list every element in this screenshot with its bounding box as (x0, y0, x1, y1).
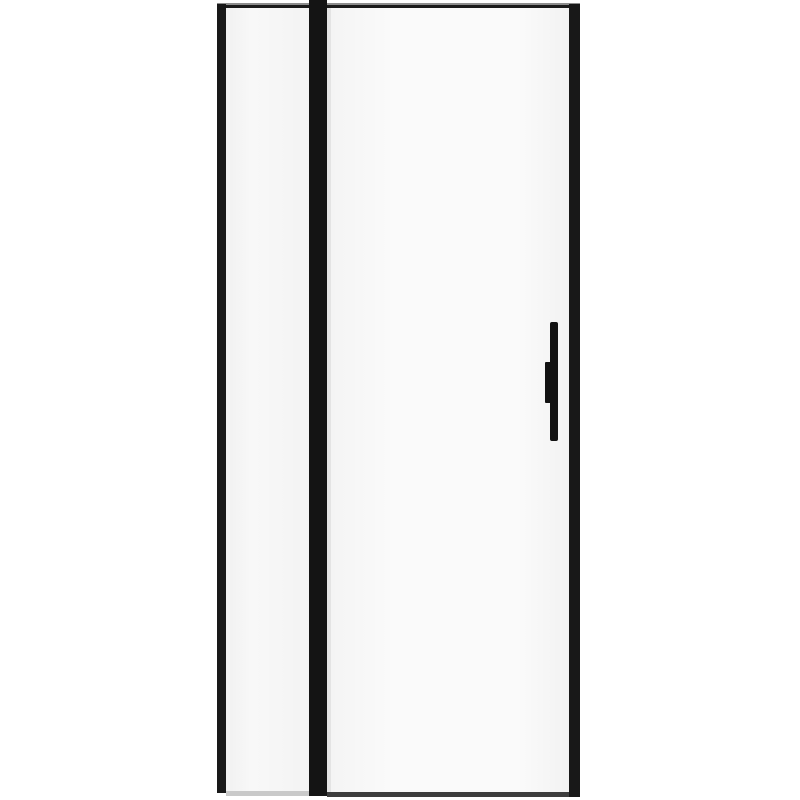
fixed-panel-glass (226, 7, 309, 792)
door-bottom-rail (327, 792, 569, 797)
center-stile (309, 0, 327, 796)
top-rail (217, 3, 580, 8)
door-panel-glass (331, 7, 569, 792)
handle-grip-bar (550, 322, 558, 441)
product-image-canvas (0, 0, 800, 800)
right-frame-stile (569, 4, 580, 797)
top-rail-highlight (217, 3, 580, 5)
left-frame-stile (217, 4, 226, 793)
fixed-panel-bottom-sill (226, 791, 309, 796)
